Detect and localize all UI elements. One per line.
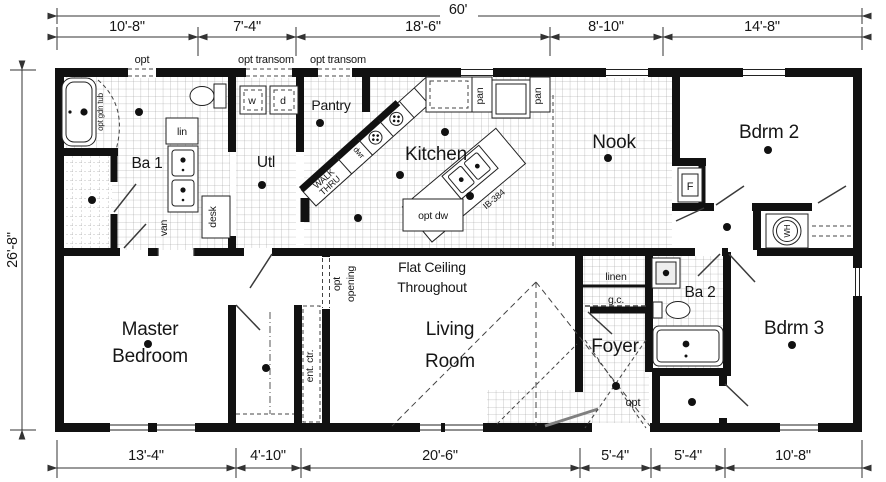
master-window-b: [157, 423, 195, 433]
dim-bottom-5: 5'-4": [674, 448, 702, 464]
room-label-foyer: Foyer: [591, 336, 639, 357]
gc-label: g.c.: [608, 294, 624, 306]
opt-window-ba1: [128, 67, 156, 78]
opt-transom-window-b: [318, 67, 352, 78]
living-window-b: [445, 423, 483, 433]
dim-top-3: 18'-6": [405, 19, 441, 35]
dim-top-1: 10'-8": [109, 19, 145, 35]
dim-top-5: 14'-8": [744, 19, 780, 35]
pan-label-b: pan: [532, 87, 544, 104]
bdrm3-window: [780, 423, 818, 433]
room-label-pantry: Pantry: [311, 97, 350, 113]
opt-opening-label-1: opt: [331, 277, 343, 291]
dryer-label: d: [280, 95, 286, 107]
opt-transom-window-a: [246, 67, 292, 78]
desk-label: desk: [207, 205, 219, 227]
room-label-nook: Nook: [592, 132, 636, 153]
vanity-ba1-fixture: [168, 146, 198, 212]
dim-bottom-1: 13'-4": [128, 448, 164, 464]
dim-bottom-6: 10'-8": [775, 448, 811, 464]
room-label-utl: Utl: [257, 154, 275, 171]
room-label-ba1: Ba 1: [131, 155, 162, 172]
bdrm2-window: [743, 67, 785, 78]
floor-plan-page: 60' 10'-8" 7'-4" 18'-6" 8'-10" 14'-8" 26…: [0, 0, 886, 482]
linen-label: linen: [605, 271, 627, 283]
lin-label: lin: [177, 126, 187, 138]
tub-ba2-fixture: [653, 326, 723, 366]
dim-overall-depth: 26'-8": [5, 232, 21, 268]
front-door-opening: [592, 423, 650, 433]
furnace-label: F: [687, 181, 694, 193]
water-heater-fixture: WH: [766, 214, 808, 248]
opt-transom-label-b: opt transom: [310, 54, 366, 66]
room-label-bdrm3: Bdrm 3: [764, 318, 824, 339]
room-label-bdrm2: Bdrm 2: [739, 122, 799, 143]
opt-transom-label-a: opt transom: [238, 54, 294, 66]
flat-ceiling-label-2: Throughout: [397, 279, 467, 295]
dim-top-4: 8'-10": [588, 19, 624, 35]
pan-label-a: pan: [474, 87, 486, 104]
vanity-ba2-fixture: [652, 258, 680, 288]
living-window-a: [420, 423, 441, 433]
nook-window: [606, 67, 648, 78]
opt-foyer-label: opt: [626, 397, 641, 409]
dim-overall-width: 60': [449, 2, 468, 18]
washer-label: w: [247, 95, 256, 107]
dim-top-2: 7'-4": [233, 19, 261, 35]
opt-window-label: opt: [135, 54, 150, 66]
furnace-box: F: [678, 168, 702, 202]
opt-opening-label-2: opening: [345, 266, 357, 302]
van-label: van: [158, 219, 170, 236]
toilet-ba2-fixture: [653, 302, 690, 319]
ent-ctr-label: ent. ctr.: [304, 350, 316, 383]
flat-ceiling-label-1: Flat Ceiling: [398, 259, 466, 275]
opt-dw-label: opt dw: [418, 210, 448, 222]
room-label-living-2: Room: [425, 351, 475, 372]
kitchen-window: [461, 67, 493, 78]
opt-opening-gap: [321, 257, 331, 309]
toilet-ba1-fixture: [190, 84, 226, 108]
floor-plan-drawing: 60' 10'-8" 7'-4" 18'-6" 8'-10" 14'-8" 26…: [0, 0, 886, 482]
room-label-kitchen: Kitchen: [405, 144, 467, 165]
room-label-living-1: Living: [426, 319, 474, 340]
dim-bottom-2: 4'-10": [250, 448, 286, 464]
room-label-master-1: Master: [122, 319, 180, 340]
room-label-master-2: Bedroom: [112, 346, 188, 367]
opt-dishwasher-box: opt dw: [403, 199, 463, 231]
water-heater-label: WH: [783, 224, 792, 237]
master-window-a: [110, 423, 148, 433]
opt-gdn-tub-label: opt gdn tub: [96, 92, 105, 131]
dim-bottom-3: 20'-6": [422, 448, 458, 464]
room-label-ba2: Ba 2: [684, 284, 715, 301]
dim-bottom-4: 5'-4": [601, 448, 629, 464]
bdrm3-side-window: [853, 268, 862, 296]
